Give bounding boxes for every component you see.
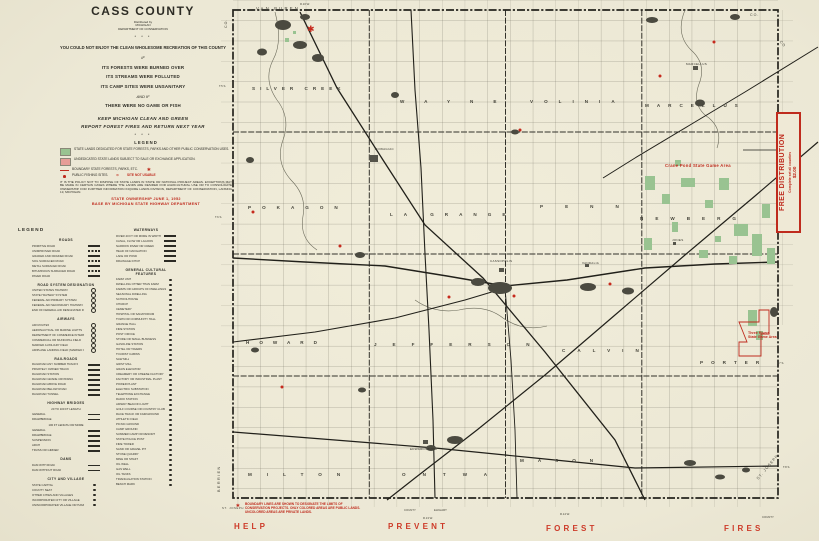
slogan-forests: ITS FORESTS WERE BURNED OVER (52, 65, 234, 70)
city-dowagiac: DOWAGIAC (375, 147, 394, 151)
feature-symbol (169, 464, 171, 466)
legend-item: TRUSS OR GIRDER (32, 448, 100, 453)
road-symbol (88, 265, 100, 266)
township-pokagon: POKAGON (248, 205, 349, 210)
legend-item: DRAINAGE DITCH (116, 259, 176, 264)
bridge-symbol (88, 419, 100, 420)
legend-item-undedicated: UNDEDICATED STATE LANDS SUBJECT TO SALE … (60, 158, 232, 166)
county-st-joseph-south: ST. JOSEPH (222, 506, 244, 510)
bridges-sub2: 100 FT LENGTH OR MORE (32, 423, 100, 427)
airways-list: AIR ROUTESAERONAUTICAL OR MARINE LIGHTSD… (32, 323, 100, 353)
road-symbol (88, 245, 100, 246)
slogan-fires: FIRES (724, 524, 764, 533)
land-policy-paragraph: IT IS THE POLICY NOT TO DISPOSE OF STATE… (60, 181, 232, 195)
feature-symbol (169, 374, 171, 376)
slogan-game: THERE WERE NO GAME OR FISH (52, 103, 234, 108)
township-tick-t6s: T.6 S. (215, 215, 222, 219)
cultural-heading: GENERAL CULTURAL FEATURES (116, 268, 176, 276)
crane-pond-game-area-label: Crane Pond State Game Area (665, 163, 731, 168)
township-tick-t7s: T.7 S. (777, 361, 784, 365)
county-map-sheet: ✱ CASS COUNTY Distributed by MICHIGAN DE… (0, 0, 819, 541)
free-distribution-price: $2.00 (792, 134, 798, 211)
feature-symbol (169, 324, 171, 326)
city-jones: JONES (672, 238, 684, 242)
feature-symbol (169, 379, 171, 381)
feature-symbol (169, 314, 171, 316)
range-tick-r16w: R.16 W. (300, 2, 310, 6)
conservation-legend-heading: LEGEND (60, 140, 232, 145)
legend-item: UNINCORPORATED VILLAGE OR HAMLET (32, 503, 100, 508)
feature-symbol (169, 404, 171, 406)
feature-symbol (169, 474, 171, 476)
feature-symbol (169, 369, 171, 371)
boundary-note-star-icon: ✱ (236, 503, 240, 509)
waterways-list: RIVER 40 FT OR MORE IN WIDTHCANAL, FLOW … (116, 234, 176, 264)
feature-symbol (169, 409, 171, 411)
township-howard: HOWARD (246, 340, 327, 345)
feature-symbol (169, 294, 171, 296)
slogan-forest: FOREST (546, 524, 598, 533)
bridge-symbol (88, 435, 100, 436)
city-cassopolis: CASSOPOLIS (490, 259, 512, 263)
city-village-list: STATE CAPITALCOUNTY SEATOTHER CITIES AND… (32, 483, 100, 508)
county-elkhart: ELKHART (434, 508, 447, 512)
boundary-note: BOUNDARY LINES ARE SHOWN TO DESIGNATE TH… (245, 503, 360, 515)
feature-symbol (169, 344, 171, 346)
feature-symbol (169, 329, 171, 331)
co-abbrev-top-right: CO. (750, 13, 759, 17)
township-newberg: NEWBERG (640, 216, 748, 221)
feature-symbol (169, 304, 171, 306)
city-symbol (93, 489, 95, 491)
slogan-streams: ITS STREAMS WERE POLLUTED (52, 74, 234, 79)
bridges-sub1: 20 TO 100 FT LENGTH (32, 407, 100, 411)
feature-symbol (169, 454, 171, 456)
waterway-symbol (164, 260, 176, 261)
county-word-2: COUNTY (762, 515, 774, 519)
bridge-symbol (88, 414, 100, 415)
dams-list: DAM WITH ROADDAM WITHOUT ROAD (32, 463, 100, 473)
legend-item: BENCH MARK (116, 482, 176, 487)
feature-symbol (169, 354, 171, 356)
bridge-symbol (88, 450, 100, 451)
feature-symbol (169, 439, 171, 441)
city-symbol (93, 504, 95, 506)
slogan-keep: KEEP MICHIGAN CLEAN AND GREEN (52, 116, 234, 121)
feature-symbol (169, 449, 171, 451)
township-marcellus: MARCELLUS (645, 103, 746, 108)
slogan-prevent: PREVENT (388, 522, 448, 531)
feature-symbol (169, 399, 171, 401)
feature-symbol (169, 459, 171, 461)
county-title: CASS COUNTY (52, 4, 234, 18)
road-system-list: UNITED STATES HIGHWAYSTATE HIGHWAY SYSTE… (32, 288, 100, 313)
road-symbol (88, 270, 100, 271)
railroad-symbol (88, 374, 100, 375)
county-berrien: BERRIEN (217, 465, 221, 492)
bridge-symbol (88, 445, 100, 446)
airways-heading: AIRWAYS (32, 317, 100, 321)
railroad-symbol (88, 379, 100, 380)
star-divider: * * * (52, 34, 234, 39)
township-porter: PORTER (700, 360, 767, 365)
township-ontwa: ONTWA (402, 472, 504, 477)
feature-symbol (169, 424, 171, 426)
road-symbol (88, 255, 100, 256)
conservation-legend: LEGEND STATE LANDS DEDICATED FOR STATE F… (60, 140, 232, 206)
slogan-and-if: AND IF (52, 94, 234, 99)
range-tick-r13w: R.13 W. (423, 516, 433, 520)
cultural-list: FARM UNITDWELLING OTHER THAN FARMFARMS O… (116, 277, 176, 487)
feature-symbol (169, 479, 171, 481)
feature-symbol (169, 289, 171, 291)
township-volinia: VOLINIA (530, 99, 626, 104)
township-calvin: CALVIN (562, 348, 651, 353)
bridges-list-a: GENERALDRAWBRIDGE (32, 412, 100, 422)
legend-right-column: WATERWAYS RIVER 40 FT OR MORE IN WIDTHCA… (116, 228, 176, 487)
county-map-canvas: ✱ (215, 0, 819, 541)
township-la-grange: LA GRANGE (390, 212, 516, 217)
waterway-symbol (164, 250, 176, 251)
dam-symbol (88, 470, 100, 471)
feature-symbol (169, 434, 171, 436)
feature-symbol (169, 429, 171, 431)
railroad-symbol (88, 394, 100, 395)
city-edwardsburg: EDWARDSBURG (410, 447, 437, 451)
star-icon: ✱ (147, 168, 151, 172)
road-symbol (88, 275, 100, 276)
not-usable-icon: ⊙ (116, 174, 119, 178)
township-jefferson: JEFFERSON (374, 342, 546, 347)
free-distribution-stamp: FREE DISTRIBUTION Complete set all count… (776, 112, 801, 233)
feature-symbol (169, 319, 171, 321)
airway-symbol (91, 348, 96, 353)
township-tick-t8s: T.8 S. (783, 465, 790, 469)
city-village-heading: CITY AND VILLAGE (32, 477, 100, 481)
feature-symbol (169, 334, 171, 336)
railroad-symbol (88, 389, 100, 390)
road-symbol (88, 250, 100, 251)
slogan-camps: ITS CAMP SITES WERE UNSANITARY (52, 84, 234, 89)
bridges-heading: HIGHWAY BRIDGES (32, 401, 100, 405)
feature-symbol (169, 469, 171, 471)
bridge-symbol (88, 440, 100, 441)
feature-symbol (169, 309, 171, 311)
waterway-symbol (164, 235, 176, 236)
feature-symbol (169, 279, 171, 281)
township-penn: PENN (540, 204, 641, 209)
slogan-help: HELP (234, 522, 268, 531)
base-legend-heading: LEGEND (18, 227, 44, 232)
township-wayne: WAYNE (400, 99, 516, 104)
feature-symbol (169, 389, 171, 391)
legend-item-boundary: BOUNDARY STATE FORESTS, PARKS, ETC. ✱ (60, 168, 232, 172)
north-grid-stub (233, 0, 778, 10)
range-tick-r14w: R.14 W. (560, 512, 570, 516)
three-rivers-game-area-label: Three Rivers State Game Area (748, 331, 777, 340)
slogan-intro: YOU COULD NOT ENJOY THE CLEAN WHOLESOME … (52, 45, 234, 50)
dam-symbol (88, 465, 100, 466)
feature-symbol (169, 349, 171, 351)
feature-symbol (169, 484, 171, 486)
city-symbol (93, 494, 95, 496)
free-distribution-title: FREE DISTRIBUTION (779, 134, 788, 211)
red-line-swatch (60, 170, 69, 171)
feature-symbol (169, 364, 171, 366)
red-dot-swatch (63, 175, 66, 178)
ownership-date-line: STATE OWNERSHIP JUNE 1, 1952 (60, 197, 232, 201)
legend-item: DAM WITHOUT ROAD (32, 468, 100, 473)
feature-symbol (169, 339, 171, 341)
city-vandalia: VANDALIA (582, 261, 599, 265)
feature-symbol (169, 419, 171, 421)
railroads-list: RAILROAD ANY NUMBER TRACKSPRIVATELY OWNE… (32, 362, 100, 397)
township-milton: MILTON (248, 472, 355, 477)
railroads-heading: RAILROADS (32, 357, 100, 361)
feature-symbol (169, 414, 171, 416)
pink-swatch (60, 158, 71, 166)
road-symbol (88, 260, 100, 261)
slogan-report: REPORT FOREST FIRES AND RETURN NEXT YEAR (52, 124, 234, 129)
legend-item: END OF FEDERAL AID DESIGNATED ROUTE (32, 308, 100, 313)
roads-list: PRIMITIVE ROADUNIMPROVED ROADGRADED AND … (32, 244, 100, 279)
feature-symbol (169, 284, 171, 286)
map-star-icon: ✱ (307, 24, 315, 34)
star-divider-2: * * * (52, 132, 234, 137)
waterway-symbol (164, 240, 176, 241)
roads-heading: ROADS (32, 238, 100, 242)
waterway-symbol (164, 245, 176, 246)
green-swatch (60, 148, 71, 156)
township-mason: MASON (520, 458, 607, 463)
feature-symbol (169, 359, 171, 361)
feature-symbol (169, 384, 171, 386)
waterway-symbol (164, 255, 176, 256)
legend-item-dedicated: STATE LANDS DEDICATED FOR STATE FORESTS,… (60, 148, 232, 156)
city-marcellus: MARCELLUS (686, 62, 707, 66)
county-word-1: COUNTY (404, 508, 416, 512)
railroad-symbol (88, 369, 100, 370)
waterways-heading: WATERWAYS (116, 228, 176, 232)
legend-item-fishing: PUBLIC FISHING SITES. ⊙ SITE NOT USABLE (60, 174, 232, 178)
feature-symbol (169, 444, 171, 446)
bridge-symbol (88, 430, 100, 431)
legend-left-column: ROADS PRIMITIVE ROADUNIMPROVED ROADGRADE… (32, 234, 100, 508)
legend-item: DRAWBRIDGE (32, 417, 100, 422)
feature-symbol (169, 299, 171, 301)
slogan-if: IF (52, 55, 234, 60)
route-marker-symbol (91, 308, 96, 313)
co-abbrev-top-left: CO. (224, 19, 228, 28)
legend-item: PAVED ROAD (32, 274, 100, 279)
legend-item: RAILROAD TUNNEL (32, 392, 100, 397)
agency-line2: DEPARTMENT OF CONSERVATION (52, 28, 234, 32)
county-van-buren: VAN BUREN (256, 6, 300, 11)
railroad-symbol (88, 364, 100, 365)
township-silver-creek: SILVER CREEK (252, 86, 346, 91)
city-symbol (93, 484, 95, 486)
legend-item: AIRPLANE LANDING FIELD (MARKED OR EMERGE… (32, 348, 100, 353)
bridges-list-b: GENERALDRAWBRIDGESUSPENSIONARCHTRUSS OR … (32, 428, 100, 453)
road-system-heading: ROAD SYSTEM DESIGNATION (32, 283, 100, 287)
city-symbol (93, 499, 95, 501)
title-block: CASS COUNTY Distributed by MICHIGAN DEPA… (52, 4, 234, 137)
feature-symbol (169, 394, 171, 396)
not-usable-label: SITE NOT USABLE (127, 174, 156, 178)
base-credit-line: BASE BY MICHIGAN STATE HIGHWAY DEPARTMEN… (60, 202, 232, 206)
boundary-note-line: UNCOLORED AREAS ARE PRIVATE LANDS. (245, 511, 360, 515)
township-tick-t5s: T.5 S. (219, 84, 226, 88)
railroad-symbol (88, 384, 100, 385)
dams-heading: DAMS (32, 457, 100, 461)
